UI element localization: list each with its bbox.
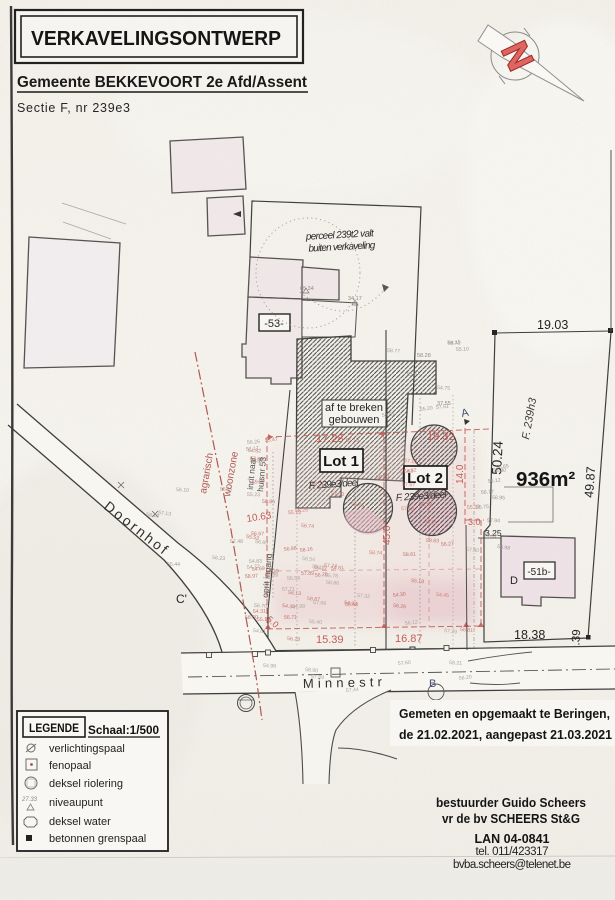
svg-text:tel. 011/423317: tel. 011/423317 [476, 846, 549, 858]
svg-text:niveaupunt: niveaupunt [49, 797, 103, 809]
svg-text:betonnen grenspaal: betonnen grenspaal [49, 833, 146, 845]
svg-text:de 21.02.2021, aangepast 21.03: de 21.02.2021, aangepast 21.03.2021 [399, 728, 612, 742]
svg-text:LEGENDE: LEGENDE [29, 721, 79, 735]
svg-text:deksel riolering: deksel riolering [49, 778, 123, 790]
svg-text:Schaal:1/500: Schaal:1/500 [88, 725, 159, 737]
svg-text:Gemeten en opgemaakt te Bering: Gemeten en opgemaakt te Beringen, [399, 707, 610, 721]
svg-text:bestuurder Guido Scheers: bestuurder Guido Scheers [436, 795, 586, 810]
svg-text:fenopaal: fenopaal [49, 760, 91, 772]
svg-text:bvba.scheers@telenet.be: bvba.scheers@telenet.be [453, 859, 571, 871]
svg-text:deksel water: deksel water [49, 816, 111, 828]
svg-text:verlichtingspaal: verlichtingspaal [49, 743, 125, 755]
svg-text:LAN 04-0841: LAN 04-0841 [475, 832, 550, 846]
svg-text:27.33: 27.33 [21, 797, 38, 803]
svg-text:vr de bv SCHEERS St&G: vr de bv SCHEERS St&G [442, 811, 580, 826]
